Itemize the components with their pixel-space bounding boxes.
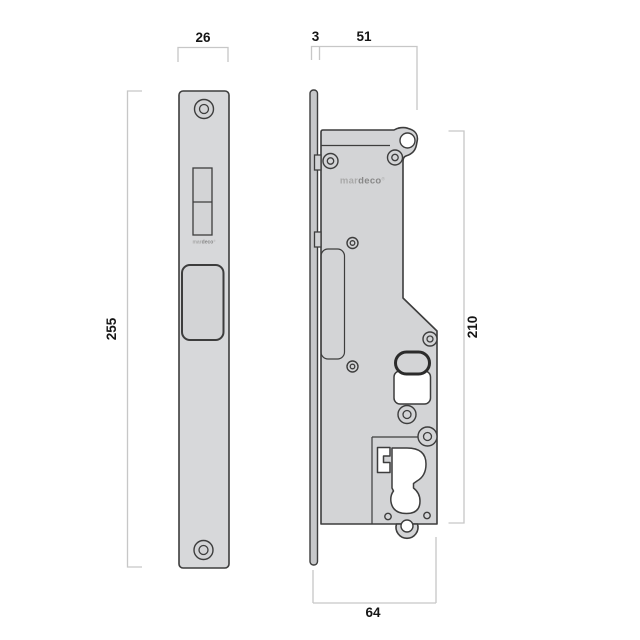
- case-brand-logo: mardeco®: [340, 176, 386, 187]
- rivet-top-right-inner: [392, 154, 398, 160]
- dim-overall-width-label: 64: [365, 605, 381, 620]
- edge-lug-bottom: [315, 232, 322, 247]
- dim-front-height-label: 255: [104, 317, 119, 340]
- snib-turn-pill: [396, 352, 430, 374]
- snib-cutout: [394, 371, 431, 404]
- dim-case-width-label: 51: [356, 29, 372, 44]
- dim-front-height-bracket: [128, 91, 143, 567]
- drawing-canvas: mardeco®: [0, 0, 640, 640]
- dim-case-height-bracket: [449, 131, 465, 523]
- lock-technical-drawing: mardeco®: [0, 0, 640, 640]
- rivet-mid-upper-inner: [350, 241, 355, 246]
- dim-case-height-label: 210: [465, 316, 480, 339]
- fixing-hole-left: [385, 513, 391, 519]
- fixing-hole-right: [424, 512, 430, 518]
- front-view: mardeco®: [179, 91, 229, 568]
- dim-front-width-label: 26: [195, 30, 211, 45]
- side-view: mardeco®: [310, 90, 437, 565]
- front-bolt-cutout: [182, 265, 224, 340]
- front-screw-hole-bottom-inner: [199, 546, 208, 555]
- rivet-diagonal-corner-inner: [427, 336, 433, 342]
- cylinder-plate-rivet-inner: [424, 433, 432, 441]
- front-brand-logo: mardeco®: [192, 239, 216, 246]
- front-screw-hole-top-inner: [200, 105, 209, 114]
- rivet-mid-lower-inner: [350, 364, 355, 369]
- dim-front-width-bracket: [178, 48, 228, 63]
- follower-hub-inner: [403, 411, 411, 419]
- dim-side-top-bracket: [312, 47, 418, 111]
- edge-lug-top: [315, 155, 322, 170]
- dim-overall-width-bracket: [313, 537, 436, 603]
- dim-faceplate-thickness-label: 3: [312, 29, 320, 44]
- bottom-tab-hole: [401, 520, 413, 532]
- rivet-top-left-inner: [327, 158, 333, 164]
- mounting-ear-hole: [400, 133, 415, 148]
